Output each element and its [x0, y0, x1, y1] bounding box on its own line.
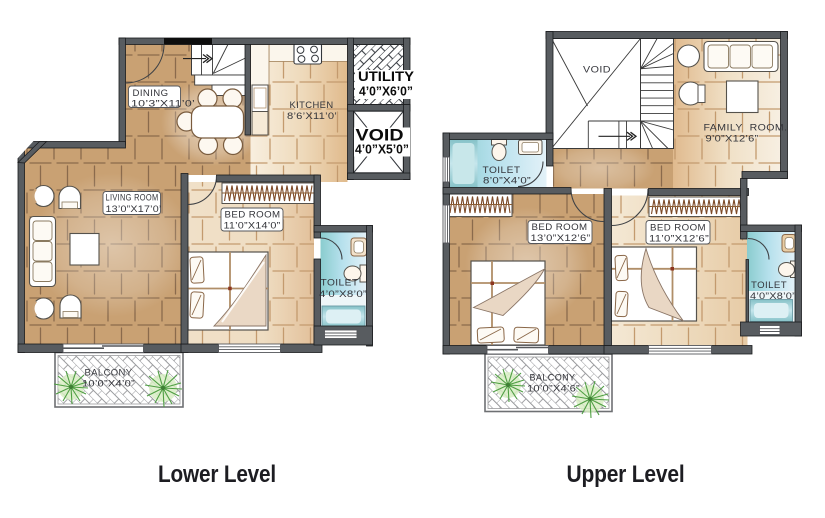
svg-text:Lower Level: Lower Level — [158, 461, 276, 488]
svg-text:4’0”X6’0”: 4’0”X6’0” — [359, 85, 413, 99]
svg-text:TOILET: TOILET — [483, 165, 521, 176]
svg-text:BED ROOM: BED ROOM — [225, 210, 281, 221]
svg-text:4’0”X8’0”: 4’0”X8’0” — [319, 289, 367, 300]
svg-text:8’0”X4’0”: 8’0”X4’0” — [483, 176, 531, 187]
svg-text:13’0”X12’6”: 13’0”X12’6” — [531, 233, 591, 244]
svg-text:8’6’X11’0’: 8’6’X11’0’ — [287, 111, 337, 122]
svg-text:FAMILY ROOM.: FAMILY ROOM. — [704, 123, 788, 134]
svg-text:BALCONY: BALCONY — [530, 373, 576, 384]
svg-text:UTILITY: UTILITY — [358, 68, 415, 84]
svg-text:4’0”X5’0”: 4’0”X5’0” — [355, 143, 409, 157]
svg-text:LIVING ROOM: LIVING ROOM — [106, 193, 159, 204]
svg-text:TOILET: TOILET — [321, 278, 359, 289]
svg-text:9’0”X12’6”: 9’0”X12’6” — [706, 134, 759, 145]
svg-text:BALCONY: BALCONY — [85, 368, 133, 379]
svg-text:10’0”X4’6”: 10’0”X4’6” — [527, 384, 580, 395]
svg-text:TOILET: TOILET — [751, 280, 787, 291]
svg-text:10’3”X11’0’: 10’3”X11’0’ — [131, 99, 195, 110]
svg-text:13’0”X17’0’: 13’0”X17’0’ — [106, 204, 162, 215]
svg-text:VOID: VOID — [583, 65, 611, 76]
svg-text:11’0”X12’6”: 11’0”X12’6” — [649, 234, 709, 245]
svg-text:KITCHEN: KITCHEN — [290, 100, 334, 111]
svg-text:Upper Level: Upper Level — [567, 461, 685, 488]
svg-text:10’0”X4’0”: 10’0”X4’0” — [82, 379, 135, 390]
svg-text:DINING: DINING — [133, 88, 169, 99]
svg-text:11’0”X14’0”: 11’0”X14’0” — [224, 221, 281, 232]
svg-text:BED ROOM: BED ROOM — [532, 222, 588, 233]
svg-text:4’0”X8’0”: 4’0”X8’0” — [750, 291, 796, 302]
svg-text:BED ROOM: BED ROOM — [650, 223, 706, 234]
